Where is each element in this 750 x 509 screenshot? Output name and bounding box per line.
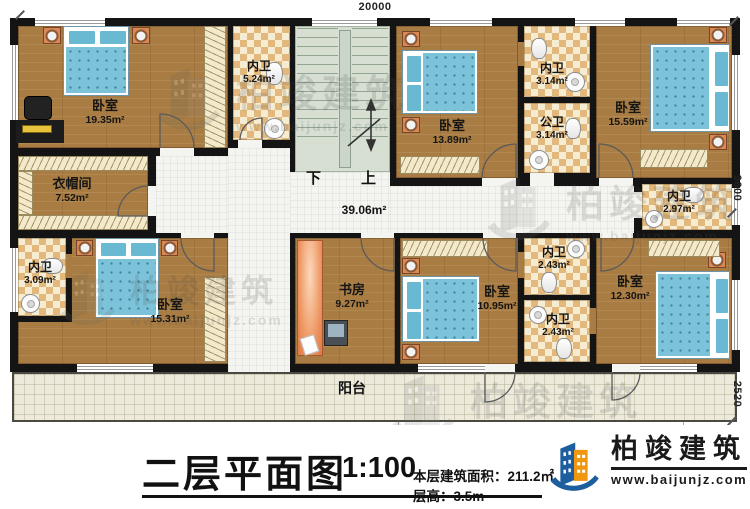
window xyxy=(430,18,492,26)
door-opening xyxy=(518,42,524,66)
window xyxy=(732,280,740,350)
wardrobe xyxy=(204,277,226,362)
bed xyxy=(655,271,730,359)
room-label: 卧室 15.31m² xyxy=(150,298,189,325)
stair-stringer xyxy=(339,30,351,168)
sink xyxy=(645,210,663,228)
toilet xyxy=(531,38,547,59)
wardrobe xyxy=(204,26,226,148)
dimension-right-upper: 9600 xyxy=(731,175,743,201)
door-opening xyxy=(518,252,524,278)
floor-plan: 卧室 19.35m² 内卫 5.24m² 卧室 13.89m² 内卫 3.14m… xyxy=(0,0,750,509)
balcony-door-opening xyxy=(612,364,640,372)
room-label: 书房 9.27m² xyxy=(335,283,368,310)
window xyxy=(312,18,377,26)
sink xyxy=(264,118,285,139)
scale-label: 1:100 xyxy=(342,452,416,485)
nightstand xyxy=(76,240,93,256)
nightstand xyxy=(709,134,727,150)
dimension-right-lower: 2520 xyxy=(731,381,743,407)
nightstand xyxy=(43,27,61,44)
room-label: 卧室 12.30m² xyxy=(610,275,649,302)
window xyxy=(640,364,697,372)
nightstand xyxy=(402,258,420,274)
door-opening xyxy=(238,140,262,148)
door-opening xyxy=(634,192,642,218)
wardrobe xyxy=(400,156,480,174)
door-opening xyxy=(599,178,633,186)
door-opening xyxy=(590,308,596,334)
dimension-top: 20000 xyxy=(358,1,391,13)
door-opening xyxy=(148,186,156,216)
balcony-door-opening xyxy=(485,364,515,372)
window xyxy=(35,18,105,26)
brand-logo: 柏竣建筑 www.baijunjz.com xyxy=(543,435,747,497)
wardrobe xyxy=(402,240,488,257)
bed xyxy=(650,44,730,132)
corridor xyxy=(390,186,634,233)
room-label: 内卫 5.24m² xyxy=(243,60,275,85)
nightstand xyxy=(402,344,420,360)
toilet xyxy=(541,272,557,293)
stair-treads-left xyxy=(297,28,338,140)
stair-treads-right xyxy=(352,28,388,140)
toilet xyxy=(556,338,572,359)
door-opening xyxy=(361,233,394,238)
stair-up-label: 上 xyxy=(361,167,376,188)
nightstand xyxy=(161,240,178,256)
window xyxy=(418,364,485,372)
door-opening xyxy=(66,254,72,278)
window xyxy=(77,364,153,372)
nightstand xyxy=(709,27,727,43)
corridor xyxy=(228,148,290,372)
window xyxy=(732,55,740,130)
room-label: 内卫 2.97m² xyxy=(663,190,695,215)
room-label: 卧室 19.35m² xyxy=(85,99,124,126)
balcony xyxy=(12,372,737,422)
door-opening xyxy=(530,173,554,186)
door-opening xyxy=(482,178,516,186)
corridor-area-label: 39.06m² xyxy=(342,204,387,218)
keyboard xyxy=(22,125,52,133)
brand-name: 柏竣建筑 xyxy=(611,435,747,465)
bed xyxy=(402,50,478,114)
door-opening xyxy=(160,148,194,156)
wardrobe xyxy=(18,171,33,215)
chair xyxy=(24,96,52,120)
window xyxy=(10,45,18,120)
sink xyxy=(21,294,40,313)
room-label: 衣帽间 7.52m² xyxy=(52,177,91,204)
floor-area-label: 本层建筑面积：211.2㎡ xyxy=(413,465,554,485)
door-opening xyxy=(181,233,214,238)
page-title: 二层平面图 xyxy=(142,443,347,498)
room-label: 公卫 3.14m² xyxy=(536,116,568,141)
corridor xyxy=(156,156,228,233)
window xyxy=(677,18,730,26)
balcony-label: 阳台 xyxy=(338,378,366,398)
room-label: 内卫 2.43m² xyxy=(542,313,574,338)
room-label: 内卫 3.14m² xyxy=(536,62,568,87)
room-label: 卧室 15.59m² xyxy=(608,101,647,128)
wardrobe xyxy=(18,156,148,171)
floor-height-label: 层高：3.5m xyxy=(413,485,484,505)
nightstand xyxy=(402,31,420,47)
door-opening xyxy=(600,233,633,238)
title-block: 二层平面图 1:100 本层建筑面积：211.2㎡ 层高：3.5m 柏竣建筑 w… xyxy=(0,425,750,509)
room-label: 卧室 13.89m² xyxy=(432,119,471,146)
bed xyxy=(95,238,159,318)
brand-glyph-icon xyxy=(543,435,605,497)
wardrobe xyxy=(648,240,720,257)
room-label: 卧室 10.95m² xyxy=(477,285,516,312)
nightstand xyxy=(132,27,150,44)
bed xyxy=(63,26,129,96)
door-opening xyxy=(483,233,516,238)
room-label: 内卫 2.43m² xyxy=(538,246,570,271)
sink xyxy=(529,150,549,170)
window xyxy=(10,248,18,312)
brand-website: www.baijunjz.com xyxy=(611,467,747,487)
window xyxy=(575,18,625,26)
nightstand xyxy=(402,117,420,133)
stair-down-label: 下 xyxy=(306,167,321,188)
monitor xyxy=(324,320,348,346)
wardrobe xyxy=(18,215,148,230)
wardrobe xyxy=(640,149,708,168)
room-label: 内卫 3.09m² xyxy=(24,261,56,286)
bed xyxy=(402,276,480,342)
